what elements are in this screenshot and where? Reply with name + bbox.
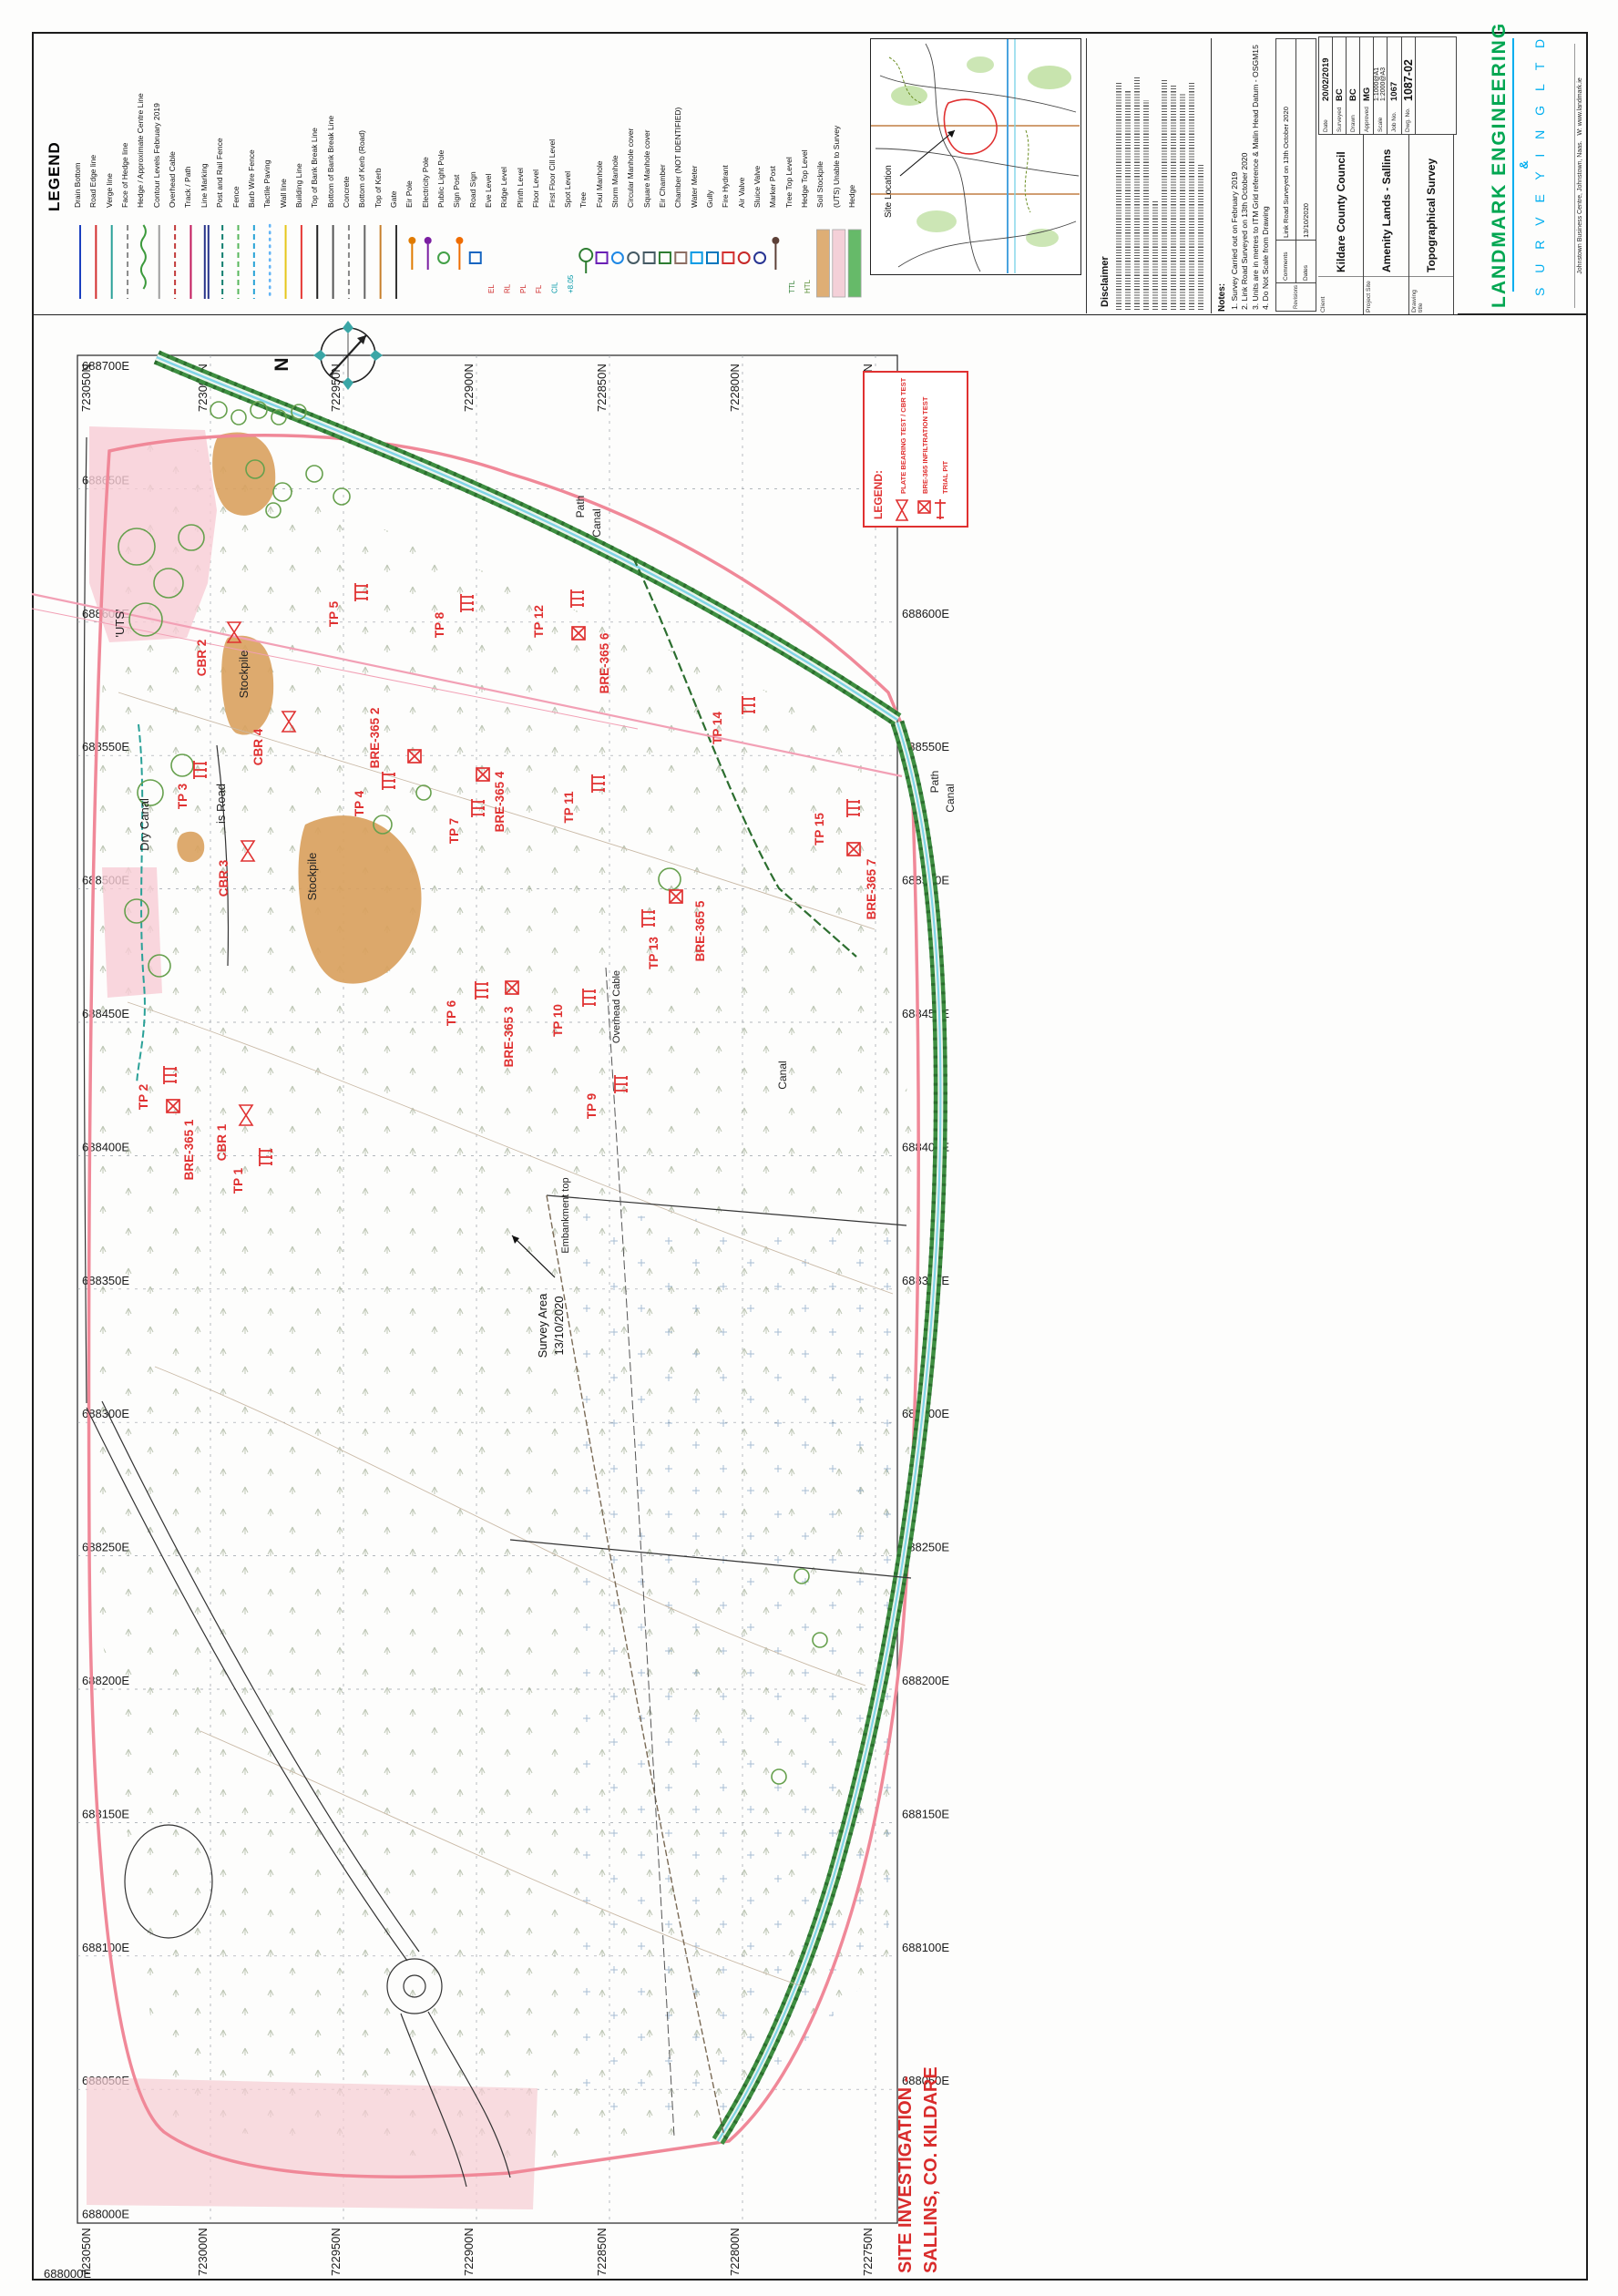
legend-item-glyph — [739, 252, 750, 263]
map-label: Stockpile — [237, 651, 251, 699]
marker-tp-icon — [847, 799, 859, 817]
marker-tp-icon — [615, 1075, 627, 1093]
map-label: Path — [928, 771, 941, 794]
marker-label: BRE-365 2 — [368, 708, 382, 769]
marker-label: TP 10 — [551, 1004, 565, 1037]
stockpile-area — [177, 832, 204, 862]
grid-label-northing: 722750N — [861, 2228, 875, 2276]
marker-tp-icon — [583, 989, 595, 1007]
marker-tp-icon — [260, 1148, 271, 1166]
grid-label-easting: 688150E — [82, 1807, 129, 1820]
marker-label: TP 15 — [813, 813, 826, 846]
grid-label-corner: 688000E — [44, 2267, 91, 2281]
legend-item-glyph: CIL — [551, 282, 559, 293]
legend-item-glyph: FL — [535, 284, 543, 293]
marker-tp-icon — [571, 589, 583, 608]
legend-item-glyph — [644, 252, 655, 263]
survey-area-label: Survey Area — [536, 1293, 549, 1358]
grid-label-easting: 688700E — [82, 359, 129, 373]
marker-label: CBR 2 — [195, 640, 209, 677]
legend-item-glyph — [816, 230, 829, 297]
marker-tp-icon — [592, 774, 604, 793]
legend-item-glyph: +8.05 — [567, 274, 575, 293]
marker-label: CBR 4 — [251, 728, 265, 765]
grid-label-northing: 722900N — [462, 364, 476, 412]
map-legend-item-label: TRIAL PIT — [941, 460, 949, 494]
map-label: Canal — [944, 784, 957, 812]
legend-item-glyph — [848, 230, 861, 297]
grid-label-easting: 688200E — [902, 1674, 949, 1687]
legend-item-glyph — [707, 252, 718, 263]
legend-item-glyph: PL — [519, 284, 527, 293]
sheet: LEGEND Drain BottomRoad Edge lineVerge l… — [0, 0, 1618, 2296]
grid-label-easting: 688000E — [82, 2208, 129, 2221]
marker-label: TP 12 — [532, 605, 546, 638]
legend-item-glyph — [773, 238, 778, 243]
map-label: Embankment top — [560, 1177, 571, 1253]
stockpile-area — [212, 433, 275, 516]
legend-item-glyph — [597, 252, 608, 263]
marker-label: TP 8 — [433, 611, 446, 638]
grid-label-easting: 688100E — [82, 1941, 129, 1954]
marker-label: TP 11 — [562, 791, 576, 824]
marker-label: TP 14 — [711, 712, 724, 744]
pink-strip — [102, 867, 162, 998]
marker-label: BRE-365 3 — [502, 1006, 516, 1067]
legend-item-glyph — [612, 252, 623, 263]
legend-item-glyph — [691, 252, 702, 263]
grid-label-easting: 688100E — [902, 1941, 949, 1954]
marker-label: TP 4 — [353, 790, 366, 816]
marker-label: CBR 1 — [215, 1123, 229, 1161]
marker-tp-icon — [383, 772, 394, 790]
marker-label: TP 5 — [327, 600, 341, 627]
map-label: 'UTS' — [113, 610, 127, 638]
map-label: Canal — [776, 1061, 789, 1089]
legend-item-glyph — [675, 252, 686, 263]
legend-item-glyph: EL — [487, 284, 496, 293]
bottom-pink-band — [87, 2077, 538, 2209]
grid-label-northing: 722950N — [329, 2228, 343, 2276]
grid-label-northing: 722900N — [462, 2228, 476, 2276]
legend-item-glyph — [470, 252, 481, 263]
sheet-title-line1: SITE INVESTIGATION - — [896, 2076, 916, 2273]
marker-tp-icon — [164, 1066, 176, 1084]
legend-item-glyph: TTL — [788, 280, 796, 293]
legend-item-glyph — [425, 238, 431, 243]
map-label: is Road — [214, 784, 228, 824]
grid-label-northing: 722800N — [728, 364, 742, 412]
marker-label: BRE-365 6 — [598, 632, 611, 693]
sheet-title-line2: SALLINS, CO. KILDARE — [921, 2066, 941, 2273]
marker-label: BRE-365 5 — [693, 900, 707, 961]
north-label: N — [271, 357, 292, 371]
grid-label-northing: 722800N — [728, 2228, 742, 2276]
map-label: Path — [574, 496, 587, 518]
marker-label: TP 1 — [231, 1167, 245, 1194]
map-label: Stockpile — [305, 853, 319, 901]
grid-label-easting: 688600E — [902, 607, 949, 620]
legend-item-glyph — [409, 238, 415, 243]
marker-label: TP 7 — [447, 818, 461, 844]
map-legend-item-label: BRE-365 INFILTRATION TEST — [921, 396, 929, 494]
marker-label: CBR 3 — [217, 859, 230, 897]
marker-label: TP 6 — [445, 999, 458, 1026]
grid-label-northing: 722850N — [595, 2228, 609, 2276]
grid-label-northing: 722850N — [595, 364, 609, 412]
legend-item-glyph — [754, 252, 765, 263]
legend-item-glyph — [141, 225, 146, 289]
marker-label: TP 9 — [585, 1093, 599, 1119]
map-legend-title: LEGEND: — [872, 470, 885, 519]
map-legend-item-label: PLATE BEARING TEST / CBR TEST — [899, 377, 907, 494]
legend-item-glyph — [438, 252, 449, 263]
marker-tp-icon — [476, 981, 487, 999]
legend-item-glyph — [456, 238, 462, 243]
grid-label-easting: 688150E — [902, 1807, 949, 1820]
marker-tp-icon — [355, 583, 367, 601]
legend-item-glyph — [579, 249, 592, 261]
north-arrow-icon — [313, 321, 383, 390]
map-canvas: 723050N723050N723000N723000N722950N72295… — [0, 0, 1618, 2296]
marker-label: TP 13 — [647, 937, 661, 969]
marker-label: BRE-365 4 — [493, 771, 507, 832]
map-label: Dry Canal — [138, 798, 151, 851]
grid-label-northing: 723000N — [196, 2228, 210, 2276]
marker-label: BRE-365 1 — [182, 1119, 196, 1180]
marker-tp-icon — [461, 594, 473, 612]
marker-label: TP 2 — [137, 1084, 150, 1110]
legend-item-glyph: HTL — [804, 279, 812, 293]
marker-label: TP 3 — [176, 783, 189, 809]
marker-tp-icon — [472, 799, 484, 817]
marsh-texture — [565, 1212, 906, 2123]
marker-tp-icon — [194, 761, 206, 779]
marker-label: BRE-365 7 — [865, 859, 878, 920]
map-label: Canal — [590, 508, 603, 537]
marker-tp-icon — [742, 696, 754, 714]
legend-item-glyph — [833, 230, 845, 297]
marker-tp-icon — [642, 909, 654, 928]
grid-label-northing: 722950N — [329, 364, 343, 412]
map-legend-box: LEGEND: PLATE BEARING TEST / CBR TEST BR… — [864, 372, 968, 527]
legend-item-glyph: RL — [503, 283, 511, 293]
legend-item-glyph — [660, 252, 671, 263]
legend-item-glyph — [722, 252, 733, 263]
survey-area-date: 13/10/2020 — [552, 1296, 566, 1355]
legend-item-glyph — [628, 252, 639, 263]
map-label: Overhead Cable — [611, 970, 622, 1043]
